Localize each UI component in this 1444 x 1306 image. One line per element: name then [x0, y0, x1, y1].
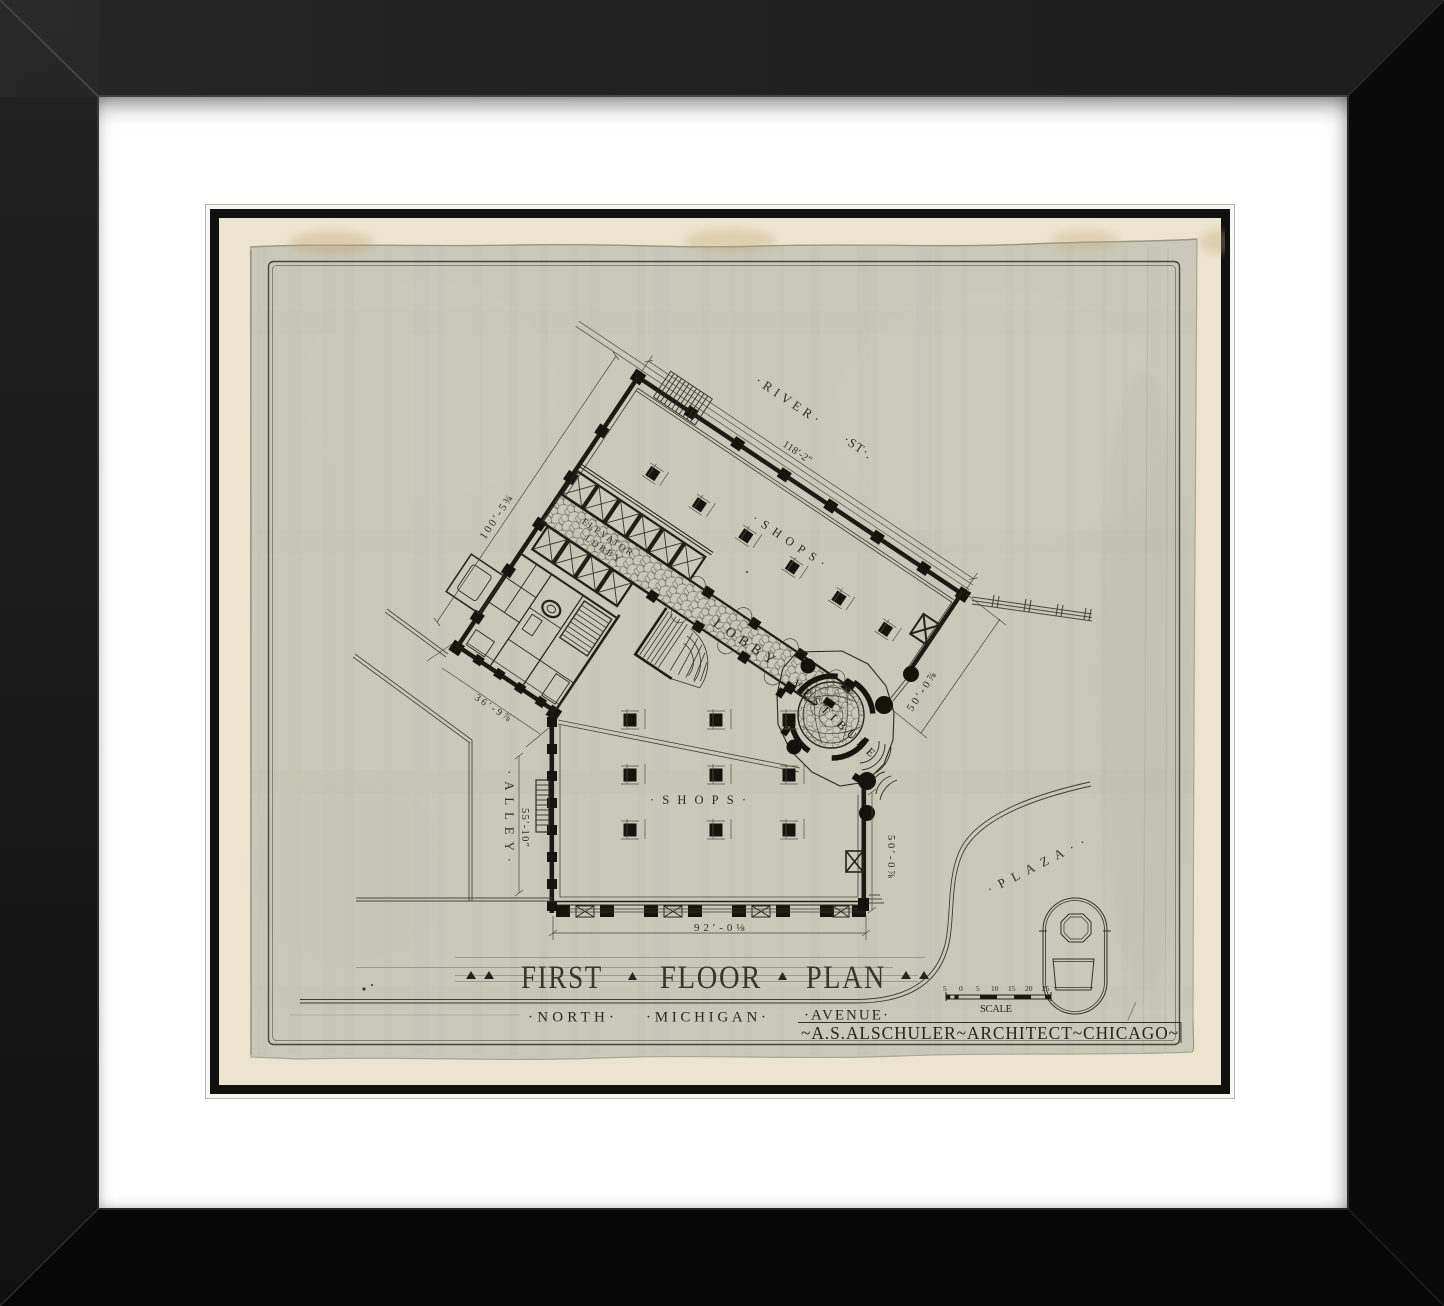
svg-text:10: 10	[991, 984, 999, 993]
svg-text:~A.S.ALSCHULER~ARCHITECT~CHICA: ~A.S.ALSCHULER~ARCHITECT~CHICAGO~	[801, 1023, 1179, 1043]
svg-text:·NORTH·: ·NORTH·	[528, 1010, 620, 1026]
svg-text:·SHOPS·: ·SHOPS·	[650, 793, 754, 807]
svg-text:SCALE: SCALE	[980, 1004, 1016, 1015]
svg-text:·MICHIGAN·: ·MICHIGAN·	[646, 1010, 772, 1026]
svg-text:0: 0	[959, 984, 963, 993]
svg-text:5: 5	[943, 984, 947, 993]
svg-text:5: 5	[976, 984, 980, 993]
svg-text:15: 15	[1008, 984, 1016, 993]
svg-text:·ALLEY·: ·ALLEY·	[502, 770, 517, 870]
svg-text:FIRST: FIRST	[521, 960, 603, 996]
svg-text:FLOOR: FLOOR	[660, 960, 762, 996]
svg-text:20: 20	[1025, 984, 1033, 993]
svg-text:25: 25	[1042, 984, 1050, 993]
svg-text:PLAN: PLAN	[806, 960, 886, 996]
svg-text:·AVENUE·: ·AVENUE·	[804, 1008, 894, 1024]
svg-text:55′-10″: 55′-10″	[519, 808, 530, 848]
